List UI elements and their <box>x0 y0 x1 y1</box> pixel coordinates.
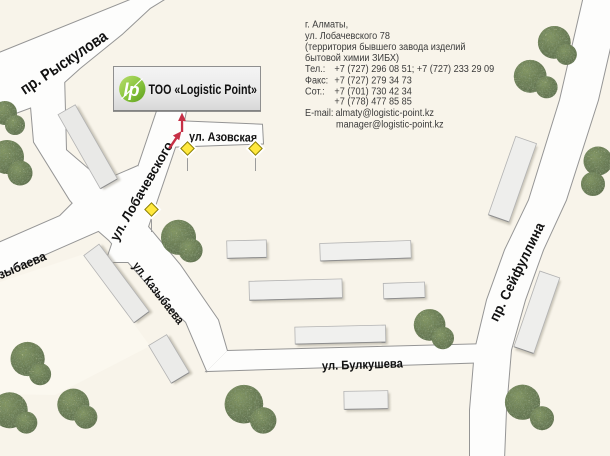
svg-text:ул. Лобачевского 78: ул. Лобачевского 78 <box>305 30 390 42</box>
svg-text:бытовой химии ЗИБХ): бытовой химии ЗИБХ) <box>305 52 399 64</box>
svg-text:г. Алматы,: г. Алматы, <box>305 19 348 31</box>
svg-text:manager@logistic-point.kz: manager@logistic-point.kz <box>336 119 444 131</box>
svg-text:ул. Булкушева: ул. Булкушева <box>322 356 404 373</box>
svg-text:almaty@logistic-point.kz: almaty@logistic-point.kz <box>335 108 434 120</box>
svg-text:+7 (778) 477 85 85: +7 (778) 477 85 85 <box>334 96 412 108</box>
svg-text:ТОО «Logistic Point»: ТОО «Logistic Point» <box>149 81 258 97</box>
svg-text:Тел.:: Тел.: <box>305 64 325 76</box>
svg-text:E-mail:: E-mail: <box>305 108 333 120</box>
svg-text:+7 (727) 296 08 51; +7 (727) 2: +7 (727) 296 08 51; +7 (727) 233 29 09 <box>334 64 494 76</box>
svg-text:ул. Азовская: ул. Азовская <box>189 130 257 145</box>
svg-text:(территория бывшего завода изд: (территория бывшего завода изделий <box>305 41 465 53</box>
svg-text:Сот.:: Сот.: <box>305 86 325 98</box>
